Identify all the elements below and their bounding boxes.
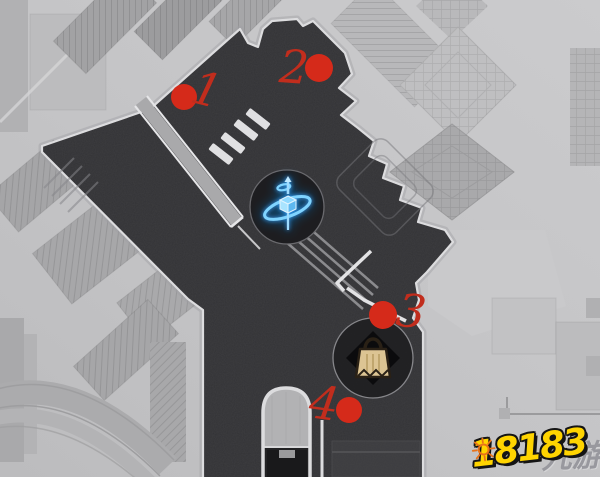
building [0, 0, 28, 132]
floor-structure [332, 441, 420, 477]
teleport-anchor[interactable] [250, 170, 324, 244]
building [586, 356, 600, 376]
marker-dot-3 [369, 301, 397, 329]
building-roof [570, 48, 600, 166]
marker-number-2: 2 [277, 39, 311, 95]
game-map-screenshot: 1 2 3 4 九游 18183 [0, 0, 600, 477]
building [586, 298, 600, 318]
marker-dot-4 [336, 397, 362, 423]
sun-doodle-icon [469, 435, 498, 464]
building [499, 408, 510, 419]
building [492, 298, 556, 354]
